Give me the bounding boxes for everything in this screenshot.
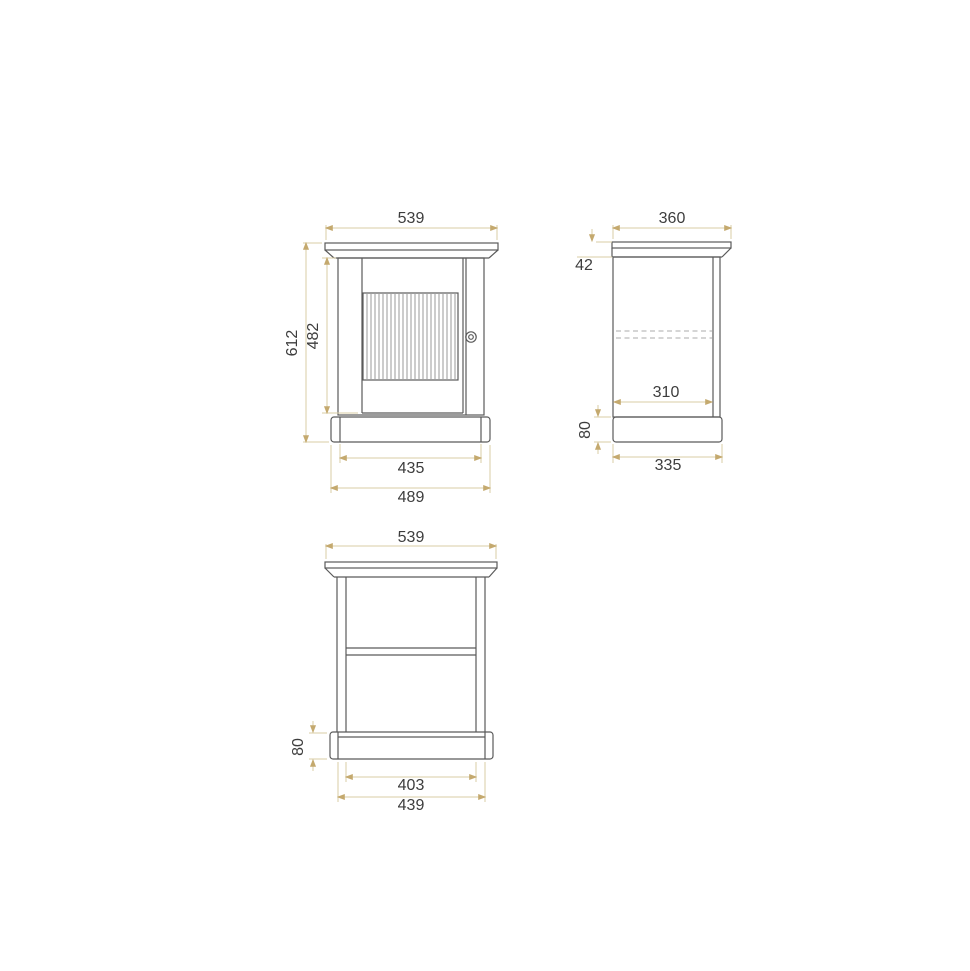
dim-label-front-plinth-inner-width: 435 [398,460,425,477]
drawing-canvas: 539 612 482 435 489 360 42 31 [0,0,970,971]
side-plinth [613,417,722,442]
rear-view: 539 80 403 439 [290,529,497,814]
side-view: 360 42 310 80 335 [575,210,731,474]
front-door-edges [362,258,466,415]
front-door-panel-frame [363,293,458,380]
dim-label-rear-top-width: 539 [398,529,425,546]
dim-label-front-plinth-width: 489 [398,489,425,506]
side-crown-top-board [612,242,731,248]
dim-label-side-top-depth: 360 [659,210,686,227]
dim-label-side-inner-depth: 310 [653,384,680,401]
door-knob-inner [469,335,474,340]
side-dimension-lines [577,225,731,463]
dim-label-side-crown-height: 42 [575,257,593,274]
dim-label-front-top-width: 539 [398,210,425,227]
dim-label-rear-plinth-width: 439 [398,797,425,814]
door-knob-outer [466,332,476,342]
dim-label-front-overall-height: 612 [284,330,301,357]
front-plinth-end-caps [340,417,481,442]
dim-label-rear-plinth-height: 80 [290,738,307,756]
front-crown-top-board [325,243,498,250]
front-plinth [331,417,490,442]
rear-dimension-labels: 539 80 403 439 [290,529,424,814]
side-crown-molding [612,248,731,257]
side-extension-lines [577,225,731,463]
front-door-slats [367,294,455,379]
front-cabinet-outline [325,243,498,442]
side-cabinet-outline [612,242,731,442]
rear-crown-molding [325,568,497,577]
rear-crown-top-board [325,562,497,568]
dim-label-side-plinth-height: 80 [577,421,594,439]
front-extension-lines [303,225,497,493]
dim-label-front-door-height: 482 [305,323,322,350]
rear-plinth-end-caps [338,732,485,759]
dim-label-rear-inner-width: 403 [398,777,425,794]
front-view: 539 612 482 435 489 [284,210,498,506]
front-crown-molding [325,250,498,258]
dim-label-side-plinth-depth: 335 [655,457,682,474]
rear-cabinet-outline [325,562,497,759]
rear-shelf-lines [346,648,476,655]
side-dimension-labels: 360 42 310 80 335 [575,210,685,474]
side-hidden-shelf-lines [616,331,712,338]
rear-plinth [330,732,493,759]
front-dimension-lines [303,225,497,493]
technical-drawing: 539 612 482 435 489 360 42 31 [0,0,970,971]
